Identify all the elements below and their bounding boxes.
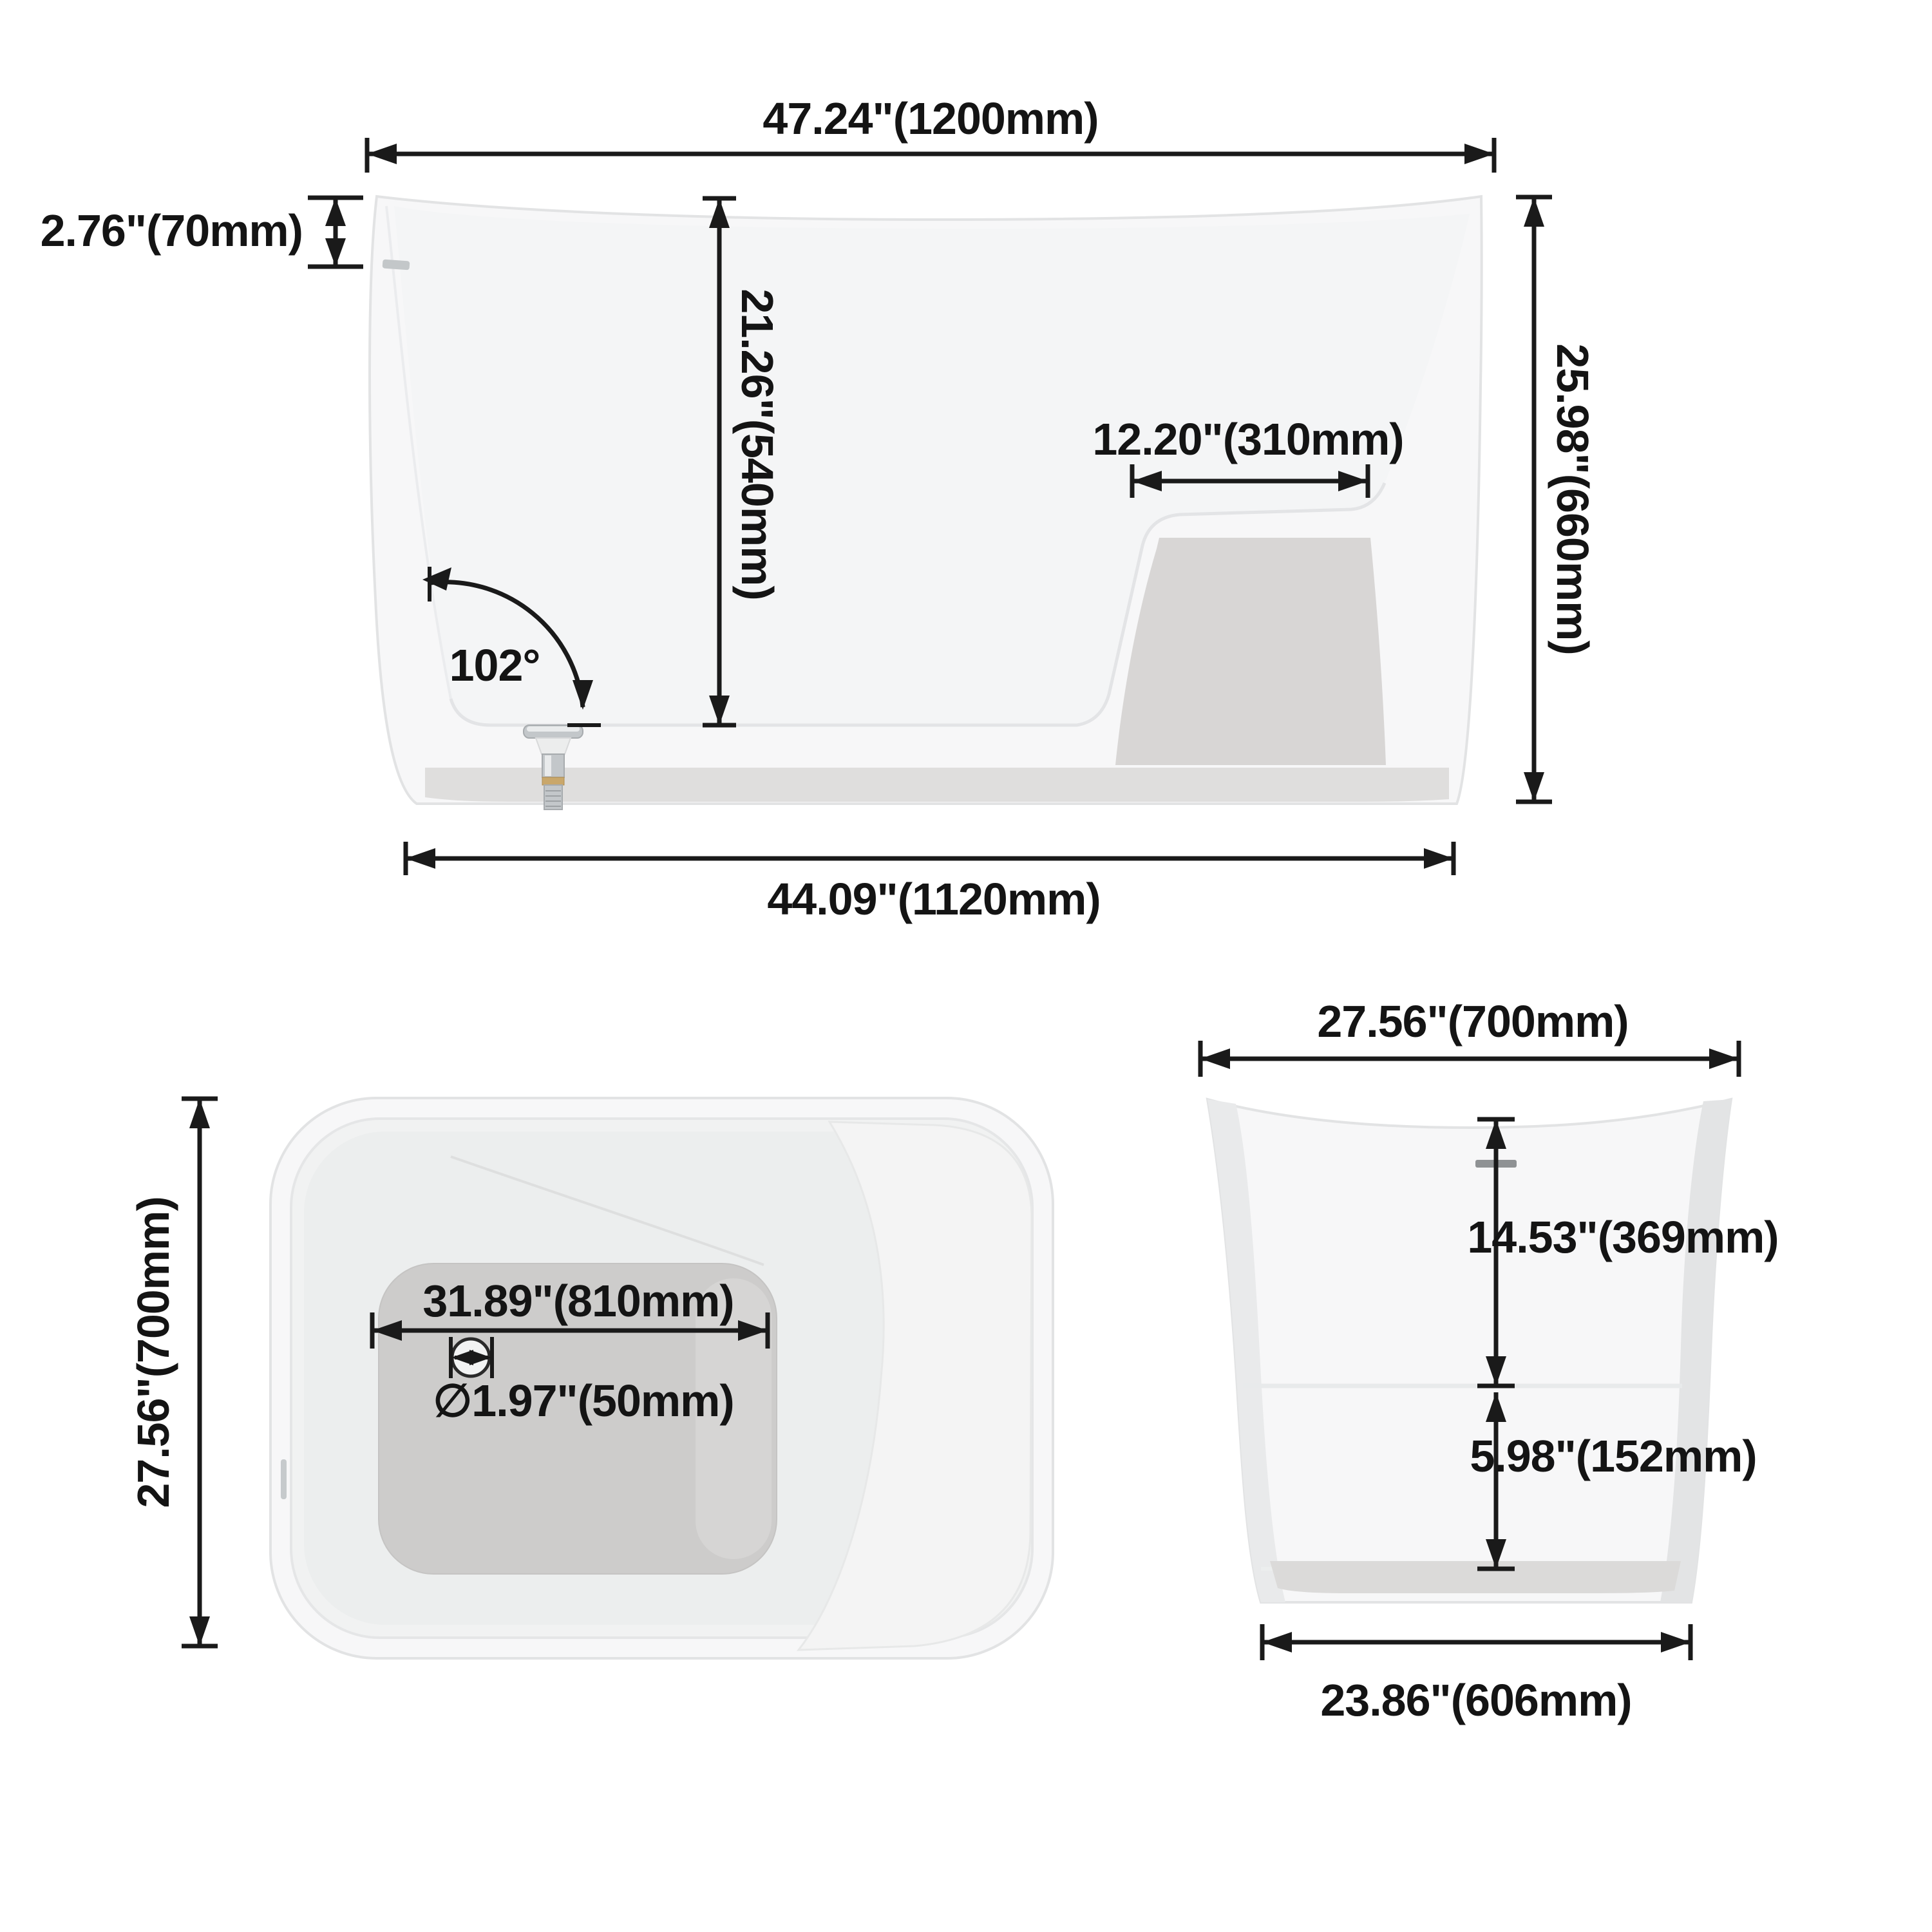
dim-side-overall-height: 25.98"(660mm) [1516, 197, 1598, 802]
dim-label-end-top-width: 27.56"(700mm) [1317, 996, 1628, 1046]
dim-label-side-bottom-width: 44.09"(1120mm) [767, 874, 1100, 924]
dim-end-top-width: 27.56"(700mm) [1200, 996, 1739, 1077]
dim-arrow [406, 848, 435, 869]
dim-arrow [367, 144, 397, 164]
dim-arrow [189, 1099, 210, 1128]
plan-overflow-icon [281, 1459, 287, 1499]
dim-label-plan-overall-length: 27.56"(700mm) [128, 1197, 178, 1508]
dim-arrow [1262, 1632, 1292, 1653]
dim-label-end-bottom-width: 23.86"(606mm) [1320, 1675, 1631, 1725]
end-view: 27.56"(700mm) 14.53"(369mm) 5.98"(152mm) [1200, 996, 1779, 1725]
side-overflow-icon [383, 260, 410, 270]
dim-arrow [325, 238, 346, 267]
dim-arrow [1464, 144, 1494, 164]
dim-label-end-seat-to-floor: 5.98"(152mm) [1470, 1431, 1756, 1481]
dim-arrow [1524, 772, 1544, 802]
dim-label-side-rim-height: 2.76"(70mm) [41, 205, 303, 256]
side-view: 47.24"(1200mm) 2.76"(70mm) 21.26"(540mm) [41, 93, 1598, 924]
dim-arrow [189, 1616, 210, 1646]
dim-arrow [1200, 1048, 1230, 1069]
dim-side-rim-height: 2.76"(70mm) [41, 198, 363, 267]
dim-label-plan-drain-diameter: ∅1.97"(50mm) [433, 1376, 734, 1426]
dim-label-side-inner-depth: 21.26"(540mm) [732, 289, 782, 600]
dim-arrow [709, 198, 730, 228]
dim-label-plan-floor-length: 31.89"(810mm) [422, 1276, 734, 1326]
end-tub-silhouette [1207, 1099, 1731, 1602]
plan-view: 27.56"(700mm) 31.89"(810mm) ∅1.97"(50mm) [128, 1098, 1053, 1658]
dim-arrow [1524, 197, 1544, 227]
dim-side-top-width: 47.24"(1200mm) [367, 93, 1494, 173]
dim-label-end-rim-to-seat: 14.53"(369mm) [1467, 1212, 1778, 1262]
dim-label-side-wall-angle: 102° [450, 640, 540, 690]
dim-arrow [325, 198, 346, 226]
dim-arrow [1709, 1048, 1739, 1069]
dim-label-side-overall-height: 25.98"(660mm) [1548, 343, 1598, 654]
dim-plan-overall-length: 27.56"(700mm) [128, 1099, 218, 1646]
side-plinth-shadow [425, 768, 1449, 802]
dim-arrow [1661, 1632, 1690, 1653]
dim-side-bottom-width: 44.09"(1120mm) [406, 842, 1454, 924]
dim-label-side-seat-depth: 12.20"(310mm) [1092, 414, 1403, 464]
side-underseat-shadow [1115, 538, 1386, 765]
dim-arrow [1424, 848, 1454, 869]
end-plinth-shadow [1270, 1561, 1681, 1593]
dim-label-side-top-width: 47.24"(1200mm) [762, 93, 1098, 144]
dim-end-bottom-width: 23.86"(606mm) [1262, 1624, 1690, 1725]
diagram-canvas: 47.24"(1200mm) 2.76"(70mm) 21.26"(540mm) [0, 0, 1932, 1932]
